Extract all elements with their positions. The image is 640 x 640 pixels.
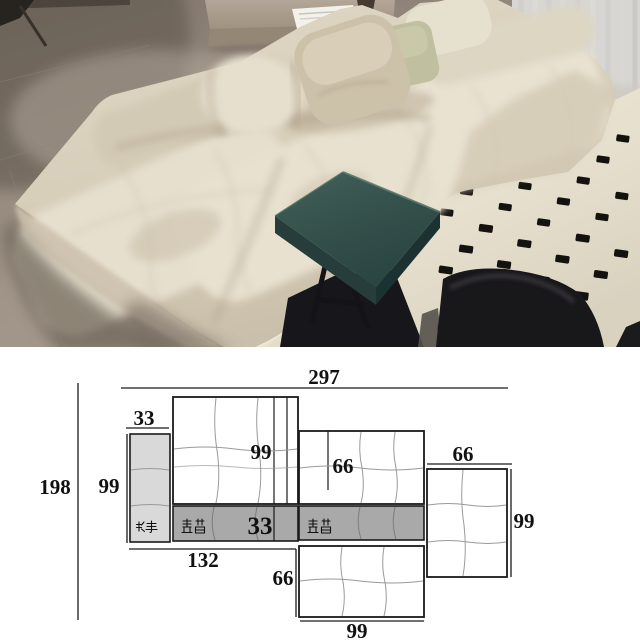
svg-text:297: 297 bbox=[308, 365, 340, 389]
svg-text:99: 99 bbox=[514, 509, 535, 533]
svg-text:66: 66 bbox=[273, 566, 294, 590]
svg-text:99: 99 bbox=[251, 440, 272, 464]
svg-text:198: 198 bbox=[39, 475, 71, 499]
svg-text:99: 99 bbox=[99, 474, 120, 498]
svg-text:66: 66 bbox=[333, 454, 354, 478]
svg-text:99: 99 bbox=[347, 619, 368, 640]
svg-text:33: 33 bbox=[134, 406, 155, 430]
svg-text:66: 66 bbox=[453, 442, 474, 466]
svg-text:33: 33 bbox=[248, 513, 273, 540]
svg-text:132: 132 bbox=[187, 548, 219, 572]
